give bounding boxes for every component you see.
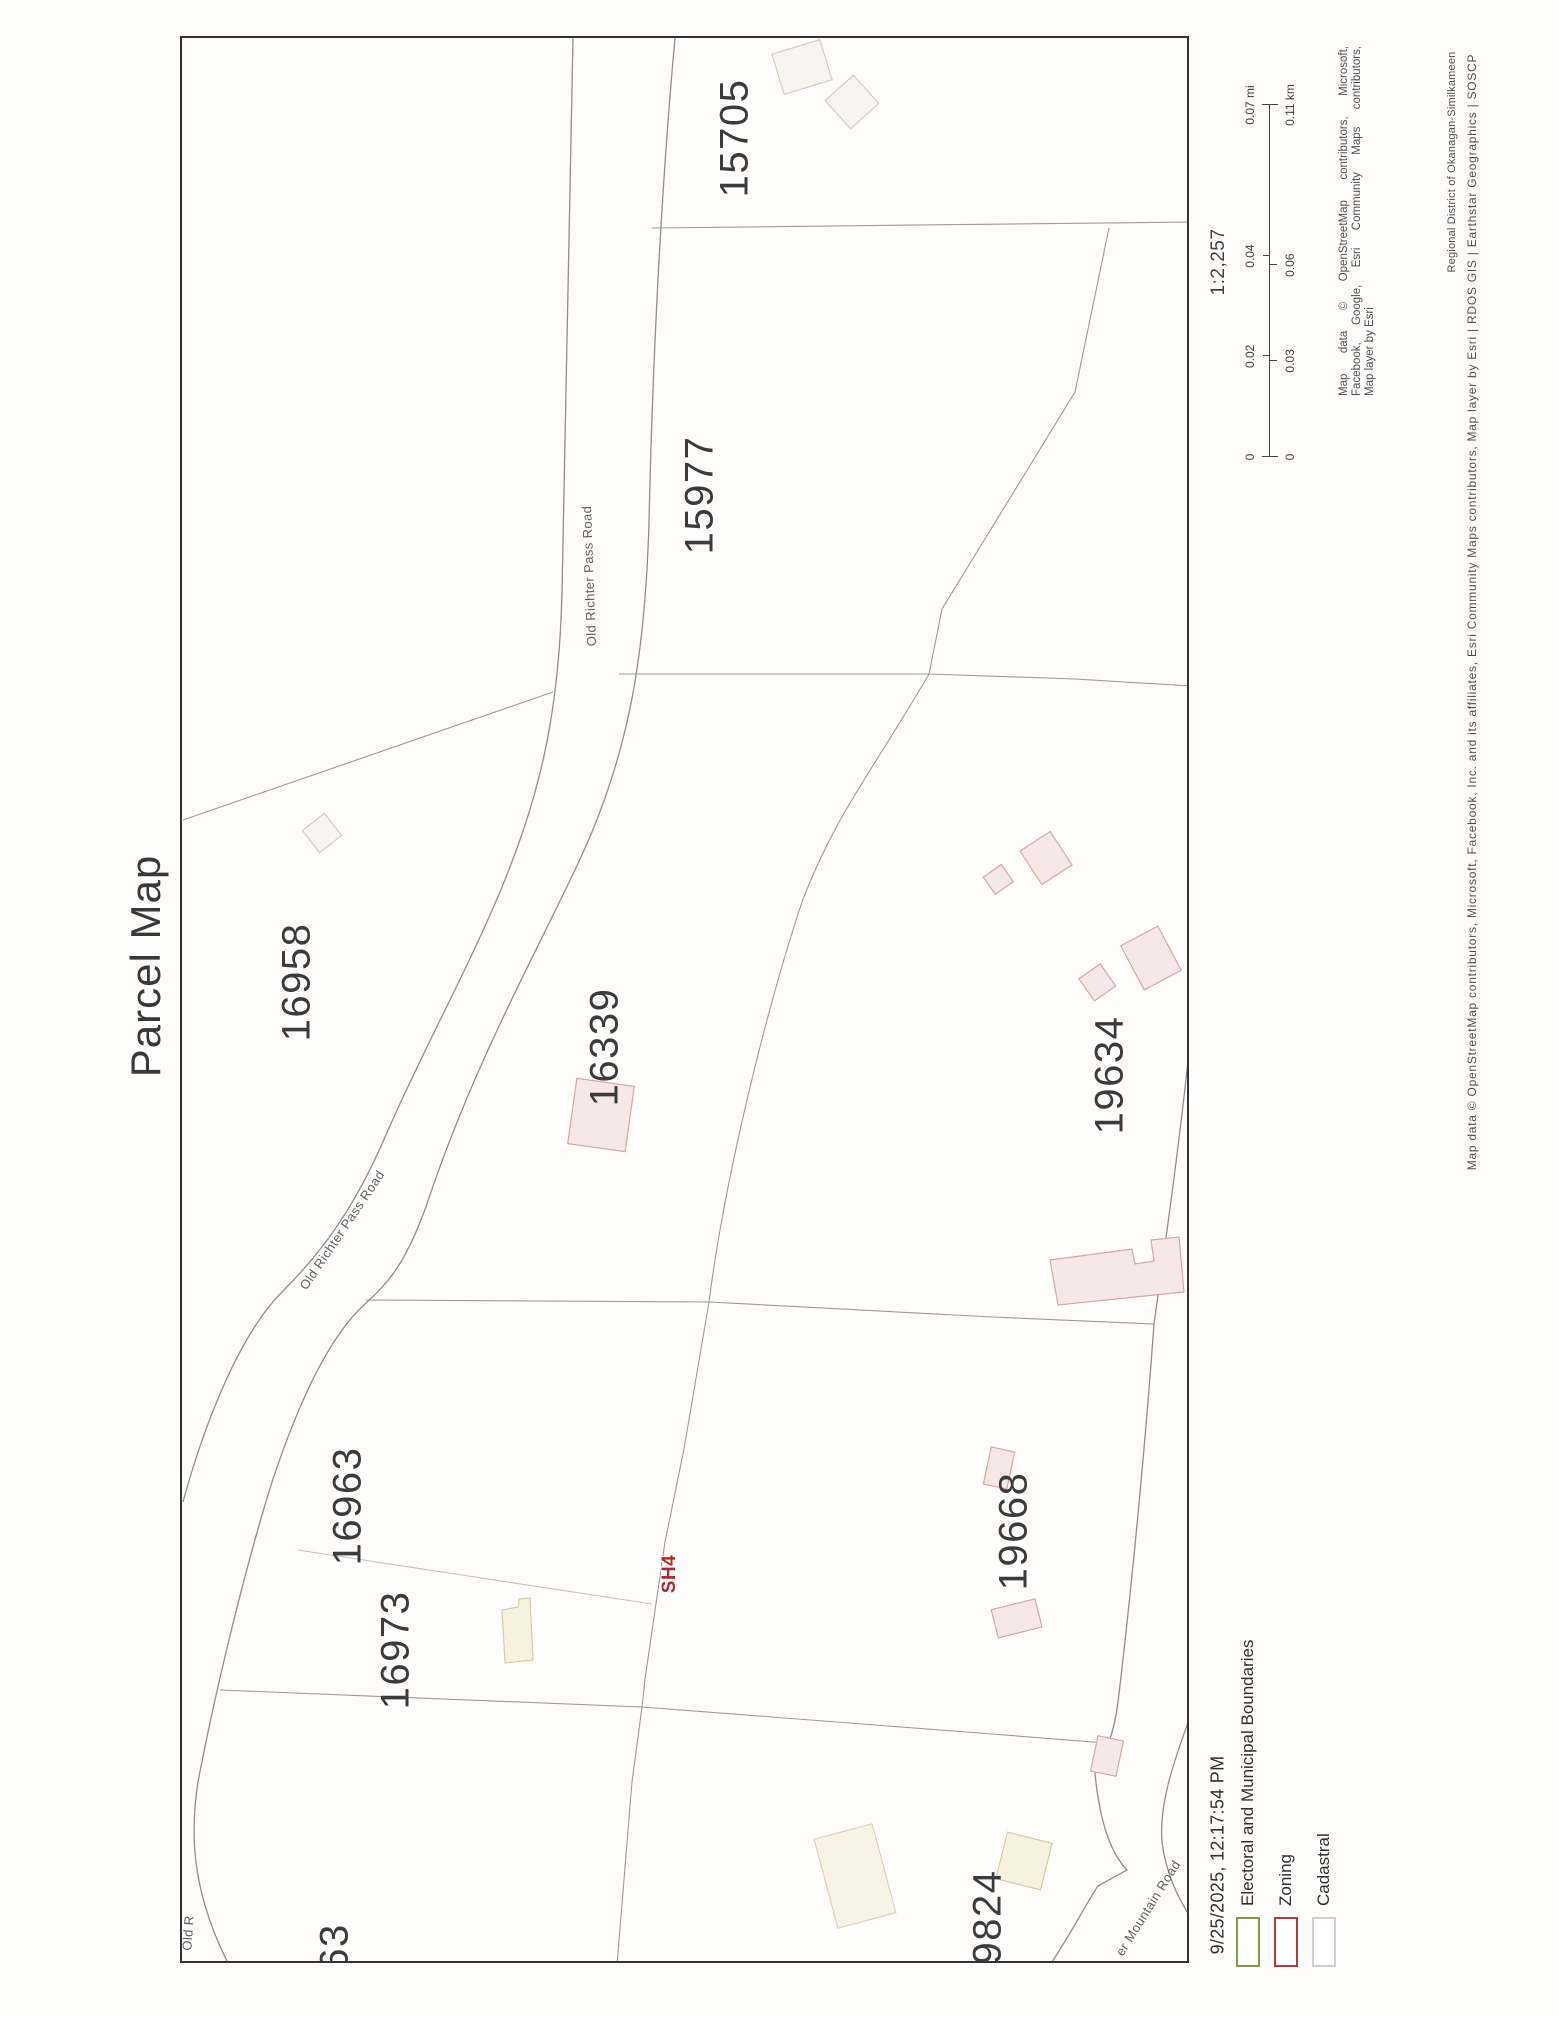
building-footprints [302,40,1184,1929]
legend-item-cadastral: Cadastral [1309,1585,1339,1967]
map-frame: 15705 15977 16958 16339 19634 16963 1697… [180,36,1189,1963]
scale-km-labels: 0 0.03 0.06 0.11 km [1283,105,1297,457]
legend-swatch-zoning [1274,1917,1298,1967]
legend-item-electoral: Electoral and Municipal Boundaries [1233,1585,1263,1967]
scale-bar-line [1262,105,1278,457]
legend-swatch-electoral [1236,1917,1260,1967]
scanned-parcel-map-page: Parcel Map [0,0,1559,2017]
map-graphics [182,38,1189,1963]
legend-item-zoning: Zoning [1271,1585,1301,1967]
legend-swatch-cadastral [1312,1917,1336,1967]
scale-miles-labels: 0 0.02 0.04 0.07 mi [1243,105,1257,457]
road-lines [183,38,1189,1963]
